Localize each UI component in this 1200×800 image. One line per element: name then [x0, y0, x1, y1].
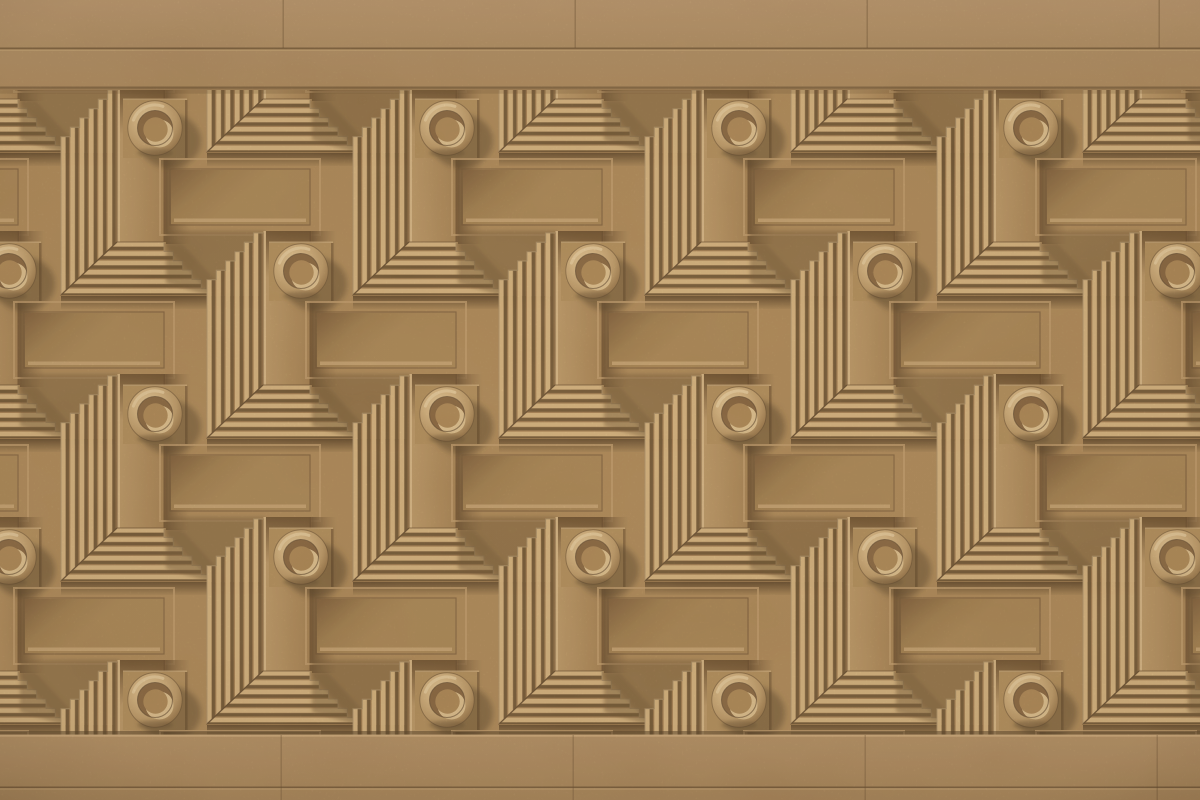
photo-stage: [0, 0, 1200, 800]
relief-wall-photo: [0, 0, 1200, 800]
vignette-overlay: [0, 0, 1200, 800]
